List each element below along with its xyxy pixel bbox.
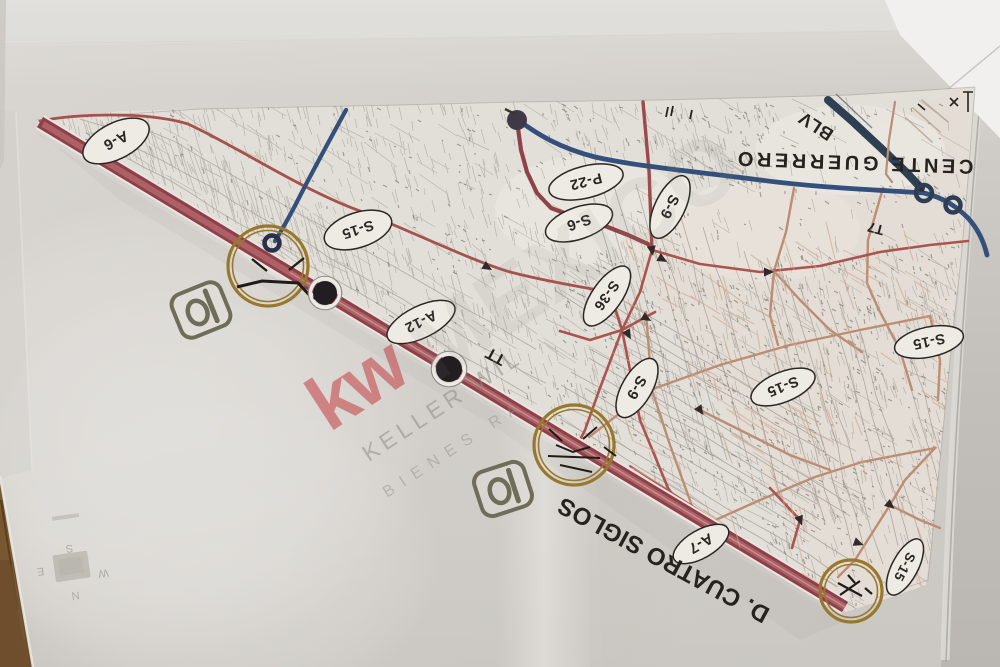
svg-text:N: N xyxy=(71,588,81,601)
